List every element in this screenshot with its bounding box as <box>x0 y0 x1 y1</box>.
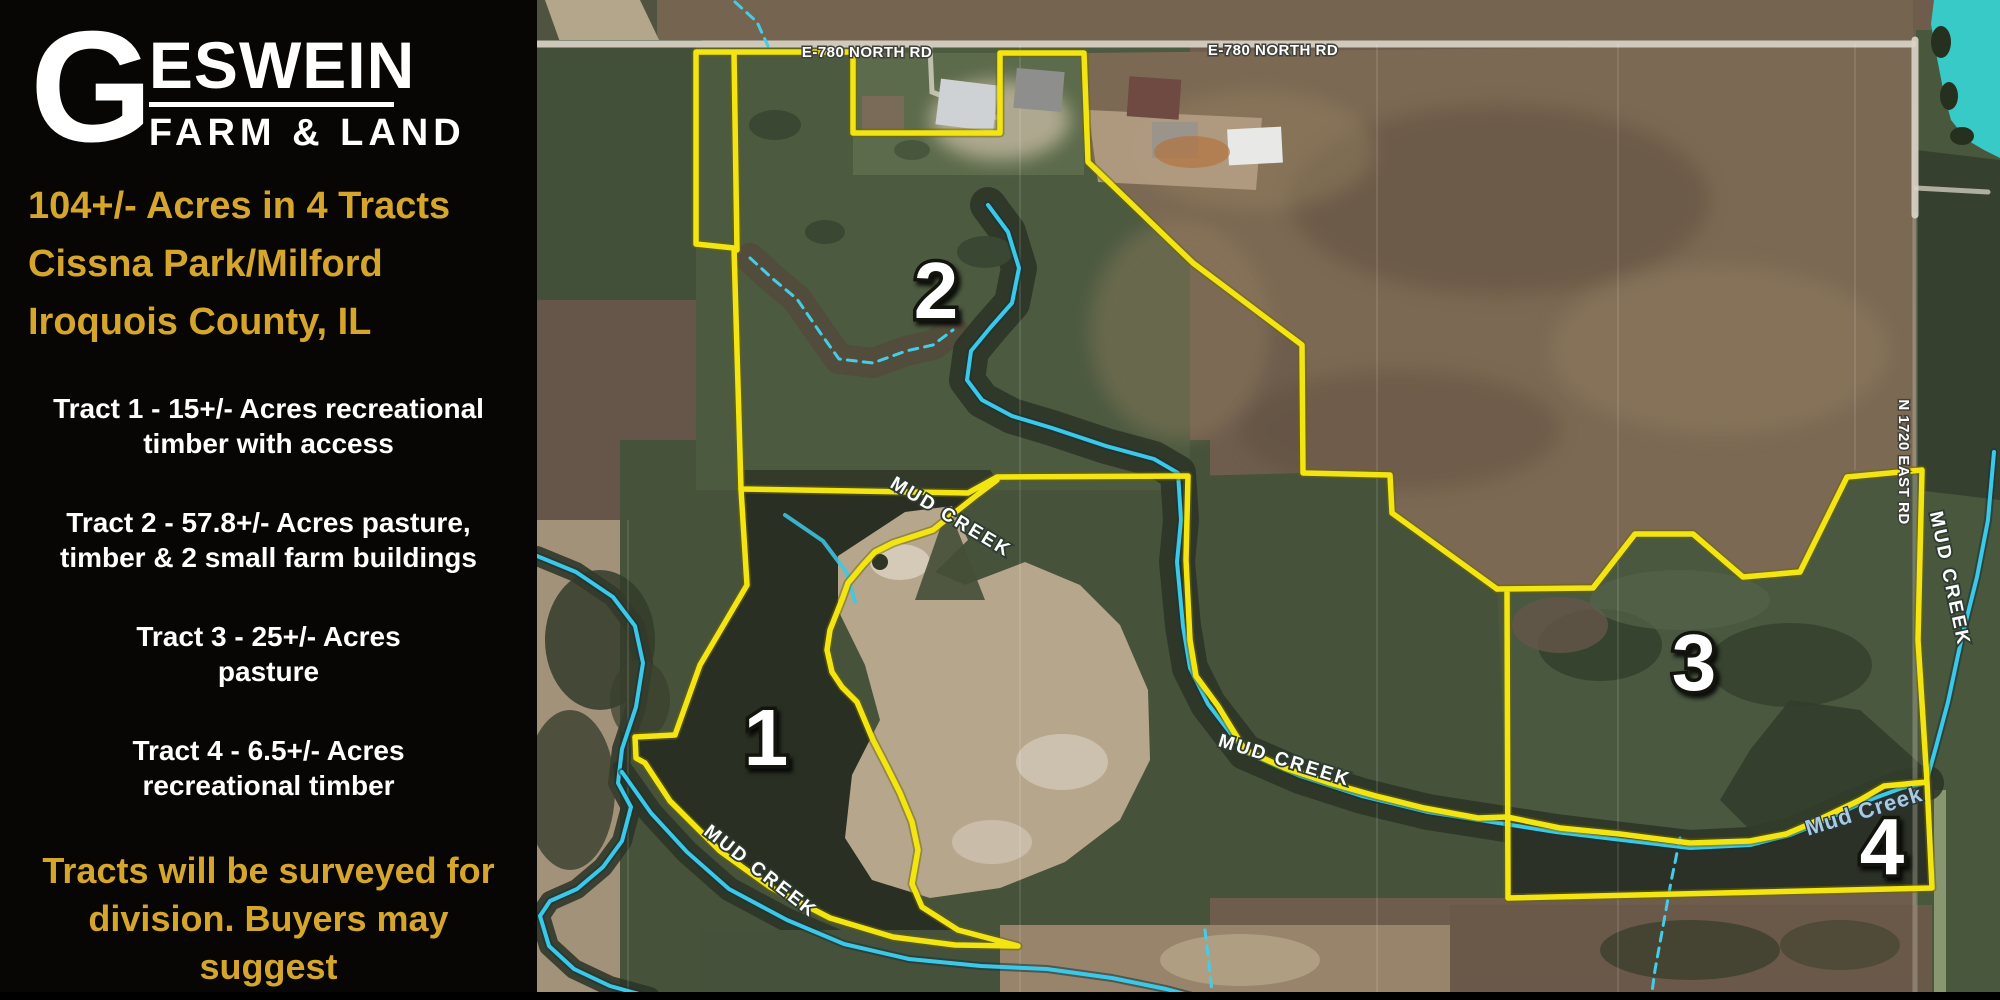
tract-number-4: 4 <box>1860 802 1905 891</box>
headline-county: Iroquois County, IL <box>28 293 537 351</box>
survey-note: Tracts will be surveyed for division. Bu… <box>0 847 537 1000</box>
tract-number-1: 1 <box>744 693 789 782</box>
headline-acres: 104+/- Acres in 4 Tracts <box>28 177 537 235</box>
logo-name: ESWEIN <box>149 32 466 98</box>
headline-towns: Cissna Park/Milford <box>28 235 537 293</box>
info-panel: G ESWEIN FARM & LAND 104+/- Acres in 4 T… <box>0 0 537 992</box>
listing-headline: 104+/- Acres in 4 Tracts Cissna Park/Mil… <box>28 177 537 351</box>
tract-descriptions: Tract 1 - 15+/- Acres recreational timbe… <box>0 391 537 803</box>
tract-4-description: Tract 4 - 6.5+/- Acres recreational timb… <box>0 733 537 803</box>
aerial-map-svg: E-780 NORTH RDE-780 NORTH RDN 1720 EAST … <box>537 0 2000 992</box>
tract-1-description: Tract 1 - 15+/- Acres recreational timbe… <box>0 391 537 461</box>
logo-letter-g: G <box>30 26 147 149</box>
building-shed <box>862 96 904 130</box>
flyer: G ESWEIN FARM & LAND 104+/- Acres in 4 T… <box>0 0 2000 1000</box>
building-red-roof-house <box>1127 76 1182 120</box>
tract-number-3: 3 <box>1672 618 1717 707</box>
aerial-map: E-780 NORTH RDE-780 NORTH RDN 1720 EAST … <box>537 0 2000 992</box>
road-label-e780-east: E-780 NORTH RD <box>1208 42 1338 59</box>
building-white-barn <box>935 79 998 132</box>
geswein-logo: G ESWEIN FARM & LAND <box>0 0 537 155</box>
building-white-shed <box>1227 127 1283 166</box>
road-label-n1720-east-rd: N 1720 EAST RD <box>1895 399 1912 524</box>
logo-tagline: FARM & LAND <box>149 112 466 155</box>
tract-3-description: Tract 3 - 25+/- Acres pasture <box>0 619 537 689</box>
tract-2-description: Tract 2 - 57.8+/- Acres pasture, timber … <box>0 505 537 575</box>
tract-number-2: 2 <box>914 246 959 335</box>
road-label-e780-west: E-780 NORTH RD <box>802 44 932 61</box>
building-house <box>1013 68 1064 112</box>
logo-divider <box>149 102 394 107</box>
